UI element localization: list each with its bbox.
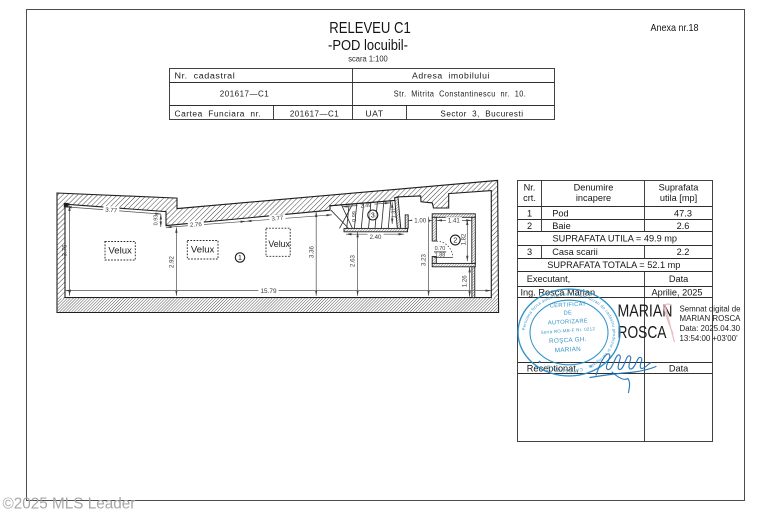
svg-text:2.2: 2.2 (677, 247, 690, 257)
svg-text:Velux: Velux (108, 246, 132, 257)
svg-text:2.40: 2.40 (370, 234, 382, 241)
svg-text:Data: Data (669, 363, 689, 373)
svg-text:201617—C1: 201617—C1 (290, 110, 339, 119)
svg-text:47.3: 47.3 (674, 208, 692, 218)
svg-text:0.99: 0.99 (352, 211, 358, 222)
svg-text:3.76: 3.76 (62, 244, 69, 256)
svg-text:crt.: crt. (523, 193, 536, 203)
svg-text:13:54:00 +03'00': 13:54:00 +03'00' (680, 334, 739, 343)
svg-text:2.63: 2.63 (350, 254, 357, 266)
svg-text:Nr.: Nr. (524, 183, 536, 193)
svg-text:15.79: 15.79 (261, 288, 277, 295)
svg-text:3.77: 3.77 (105, 207, 118, 215)
svg-text:Data: 2025.04.30: Data: 2025.04.30 (680, 324, 741, 333)
svg-text:2.49: 2.49 (360, 203, 371, 210)
svg-text:201617—C1: 201617—C1 (220, 89, 269, 98)
svg-text:Executant,: Executant, (527, 274, 570, 284)
svg-text:Velux: Velux (191, 245, 215, 256)
svg-text:1.00: 1.00 (414, 218, 426, 225)
svg-text:Pod: Pod (552, 208, 568, 218)
svg-text:CERTIFICAT: CERTIFICAT (550, 302, 587, 310)
svg-text:1: 1 (527, 208, 532, 218)
svg-text:Seria RO-MB-F Nr. 0212: Seria RO-MB-F Nr. 0212 (540, 326, 595, 335)
svg-text:1.41: 1.41 (448, 218, 460, 225)
svg-text:Str. Mitrita Constantinescu nr: Str. Mitrita Constantinescu nr. 10. (394, 89, 526, 98)
svg-text:3: 3 (527, 247, 532, 257)
svg-text:Semnat digital de: Semnat digital de (680, 304, 742, 313)
svg-text:3.36: 3.36 (308, 245, 315, 257)
svg-text:2.6: 2.6 (677, 221, 690, 231)
svg-text:2: 2 (453, 238, 457, 245)
svg-text:3: 3 (371, 213, 375, 220)
svg-text:Anexa nr.18: Anexa nr.18 (651, 23, 699, 34)
svg-text:Nr. cadastral: Nr. cadastral (175, 71, 236, 80)
svg-text:0.93: 0.93 (153, 215, 159, 226)
svg-text:utila [mp]: utila [mp] (660, 193, 697, 203)
svg-text:Cartea Funciara nr.: Cartea Funciara nr. (175, 110, 262, 119)
svg-text:RELEVEU C1: RELEVEU C1 (329, 20, 411, 37)
svg-text:Casa scarii: Casa scarii (552, 247, 597, 257)
svg-text:1.88: 1.88 (435, 253, 446, 259)
svg-text:©2025 MLS Leader: ©2025 MLS Leader (3, 495, 136, 512)
svg-text:0.70: 0.70 (435, 246, 446, 252)
svg-text:Sector 3, Bucuresti: Sector 3, Bucuresti (440, 110, 523, 119)
svg-text:Adresa imobilului: Adresa imobilului (412, 71, 490, 80)
svg-text:AUTORIZARE: AUTORIZARE (548, 318, 589, 326)
svg-text:UAT: UAT (365, 110, 383, 119)
svg-text:Suprafata: Suprafata (659, 183, 700, 193)
svg-text:Baie: Baie (552, 221, 570, 231)
svg-text:Aprilie, 2025: Aprilie, 2025 (651, 287, 702, 297)
svg-text:1: 1 (238, 255, 242, 262)
svg-text:3.23: 3.23 (421, 253, 428, 265)
svg-text:MARIAN ROSCA: MARIAN ROSCA (680, 314, 742, 323)
svg-text:1.82: 1.82 (460, 233, 467, 245)
svg-text:2: 2 (527, 221, 532, 231)
svg-text:2.92: 2.92 (169, 255, 176, 267)
svg-text:-POD locuibil-: -POD locuibil- (328, 37, 408, 54)
svg-text:ROSCA: ROSCA (618, 322, 667, 342)
svg-text:incapere: incapere (576, 193, 611, 203)
svg-text:scara 1:100: scara 1:100 (348, 54, 388, 64)
svg-text:1.26: 1.26 (461, 275, 468, 287)
svg-text:2.76: 2.76 (190, 221, 203, 229)
svg-text:SUPRAFATA TOTALA = 52.1 mp: SUPRAFATA TOTALA = 52.1 mp (547, 260, 680, 270)
svg-text:Data: Data (669, 274, 689, 284)
svg-text:MARIAN: MARIAN (555, 346, 582, 354)
svg-text:Denumire: Denumire (574, 183, 614, 193)
svg-text:ROŞCA GH.: ROŞCA GH. (549, 336, 587, 345)
svg-text:DE: DE (563, 310, 572, 316)
svg-text:SUPRAFATA UTILA = 49.9 mp: SUPRAFATA UTILA = 49.9 mp (553, 234, 678, 244)
svg-text:1.31: 1.31 (392, 208, 398, 219)
svg-text:3.77: 3.77 (271, 215, 284, 223)
svg-text:Velux: Velux (268, 239, 290, 249)
